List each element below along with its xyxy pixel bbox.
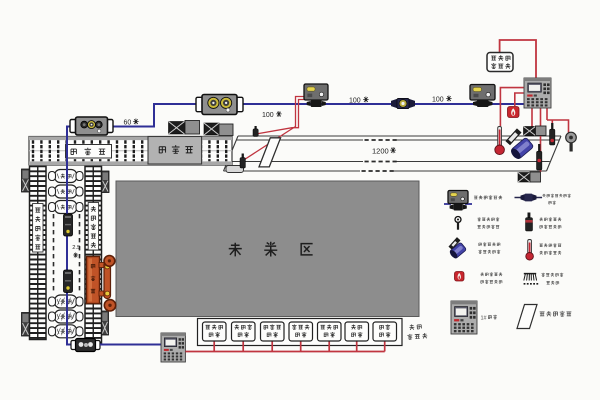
svg-text:100: 100 bbox=[349, 98, 361, 105]
svg-text:100: 100 bbox=[432, 97, 444, 104]
svg-text:2.5: 2.5 bbox=[72, 245, 80, 251]
svg-text:1200: 1200 bbox=[372, 147, 389, 156]
svg-text:1#: 1# bbox=[481, 316, 488, 322]
svg-text:100: 100 bbox=[262, 112, 274, 119]
svg-text:60: 60 bbox=[124, 120, 132, 127]
